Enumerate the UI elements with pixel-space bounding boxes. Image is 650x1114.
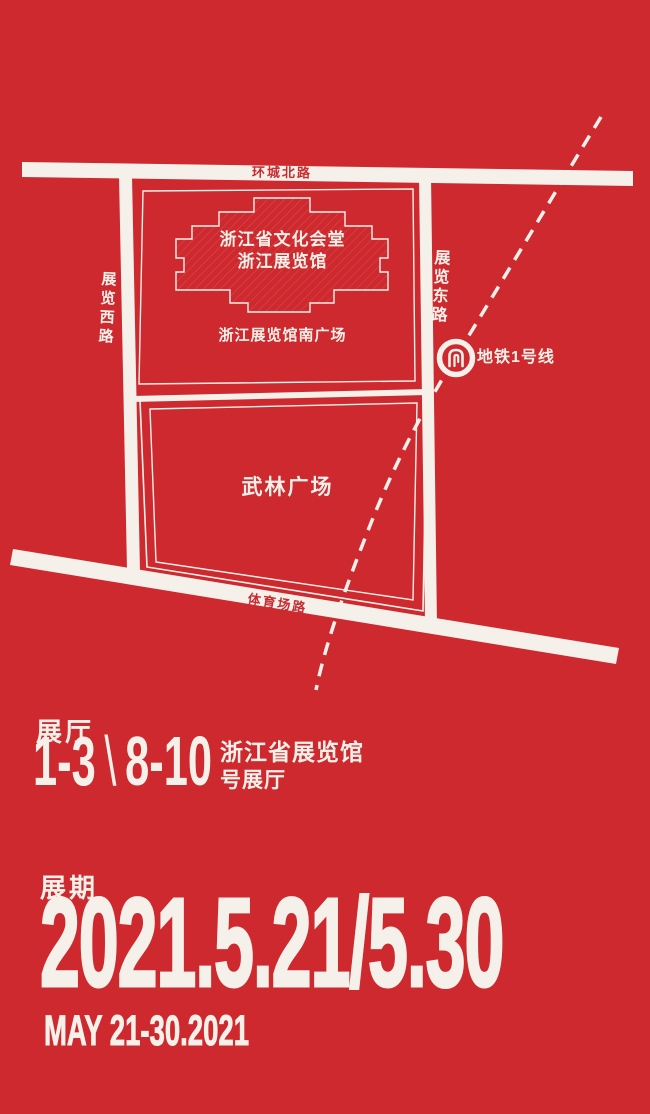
- road-north: [22, 162, 633, 186]
- metro-line-dashed: [316, 117, 601, 690]
- exhibition-dates-numeric: 2021.5.21/5.30: [40, 880, 503, 1006]
- building-label: 浙江省文化会堂 浙江展览馆: [180, 229, 385, 273]
- south-square-label: 浙江展览馆南广场: [180, 328, 385, 343]
- building-label-line1: 浙江省文化会堂: [180, 229, 385, 251]
- road-label-west: 展览西路: [97, 271, 116, 348]
- hall-range-b: 8-10: [125, 726, 212, 796]
- hall-numbers: 1-3 \ 8-10: [33, 726, 212, 796]
- exhibition-poster: 环城北路 展览西路 展览东路 体育场路 浙江省文化会堂 浙江展览馆 浙江展览馆南…: [0, 0, 650, 1114]
- exhibition-dates-english: MAY 21-30.2021: [44, 1010, 249, 1053]
- wulin-square-label: 武林广场: [200, 477, 375, 498]
- venue-name-line1: 浙江省展览馆: [220, 741, 364, 764]
- venue-name-line2: 号展厅: [220, 770, 364, 791]
- building-label-line2: 浙江展览馆: [180, 251, 385, 273]
- road-east: [419, 176, 437, 625]
- hall-range-separator: \: [104, 726, 116, 796]
- hall-range-a: 1-3: [33, 726, 96, 796]
- metro-line-label: 地铁1号线: [477, 350, 555, 366]
- road-west: [119, 176, 140, 572]
- metro-station-icon: [440, 342, 473, 375]
- road-south: [10, 549, 619, 664]
- road-label-east: 展览东路: [428, 249, 448, 326]
- venue-name: 浙江省展览馆 号展厅: [220, 741, 364, 791]
- road-label-north: 环城北路: [252, 166, 312, 180]
- wulin-block-inner: [150, 403, 417, 600]
